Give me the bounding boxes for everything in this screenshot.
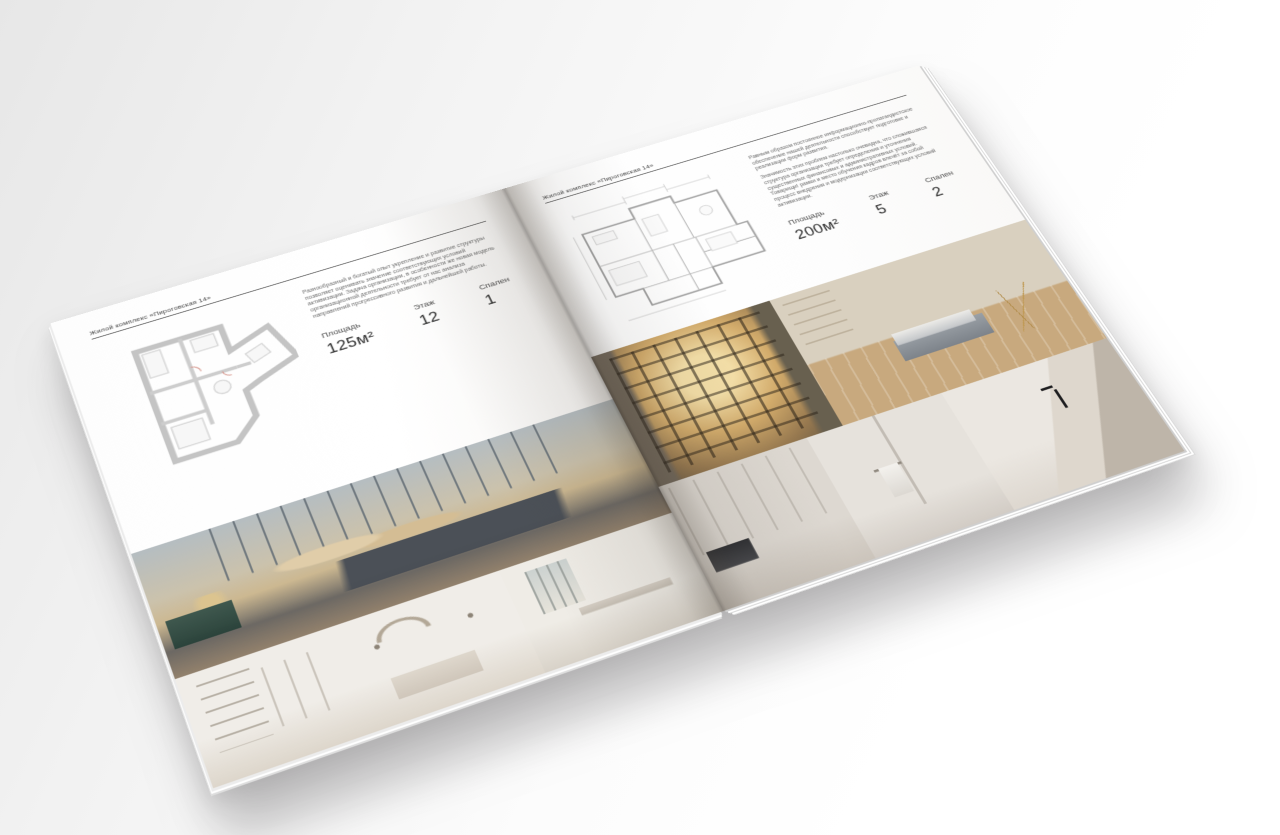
stat-bedrooms: Спален 1 <box>477 275 519 308</box>
plan2-outer-walls <box>577 180 775 313</box>
stat-area: Площадь 200м² <box>787 207 844 243</box>
plan2-partitions <box>580 187 774 314</box>
magazine-shadow-wrap: Жилой комплекс «Пироговская 14» <box>0 0 1280 835</box>
stat-floor-value: 12 <box>416 308 444 329</box>
stat-area: Площадь 125м² <box>320 318 378 357</box>
stat-floor: Этаж 5 <box>867 189 901 217</box>
open-magazine-spread: Жилой комплекс «Пироговская 14» <box>50 65 1184 788</box>
stat-floor: Этаж 12 <box>412 298 444 329</box>
white-surface-backdrop: Жилой комплекс «Пироговская 14» <box>0 0 1280 835</box>
stat-floor-value: 5 <box>873 198 901 217</box>
stat-bedrooms: Спален 2 <box>923 169 966 200</box>
